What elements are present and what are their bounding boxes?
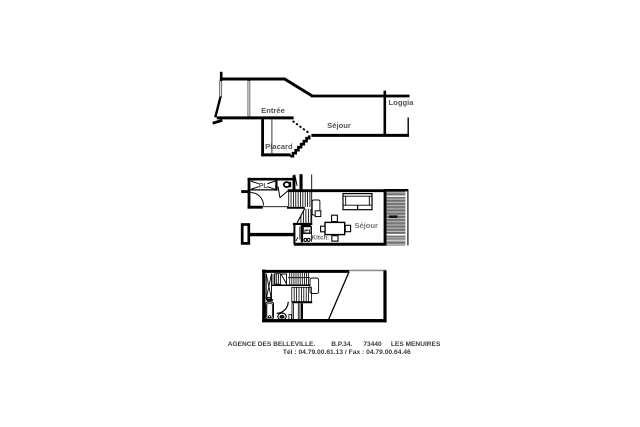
svg-text:B.P.34.: B.P.34. bbox=[331, 341, 352, 348]
svg-text:Placard: Placard bbox=[265, 142, 293, 151]
svg-text:AGENCE DES BELLEVILLE.: AGENCE DES BELLEVILLE. bbox=[228, 341, 316, 348]
svg-text:LES MENUIRES: LES MENUIRES bbox=[391, 341, 441, 348]
svg-text:Loggia: Loggia bbox=[389, 98, 415, 107]
svg-text:Entrée: Entrée bbox=[261, 106, 285, 115]
svg-text:73440: 73440 bbox=[363, 341, 382, 348]
svg-text:Kitch.: Kitch. bbox=[312, 235, 330, 242]
svg-text:Séjour: Séjour bbox=[327, 121, 351, 130]
svg-text:PL: PL bbox=[259, 183, 269, 190]
svg-text:Séjour: Séjour bbox=[354, 221, 378, 230]
svg-text:Tél : 04.79.00.61.13 / Fax : 0: Tél : 04.79.00.61.13 / Fax : 04.79.00.64… bbox=[283, 349, 411, 356]
